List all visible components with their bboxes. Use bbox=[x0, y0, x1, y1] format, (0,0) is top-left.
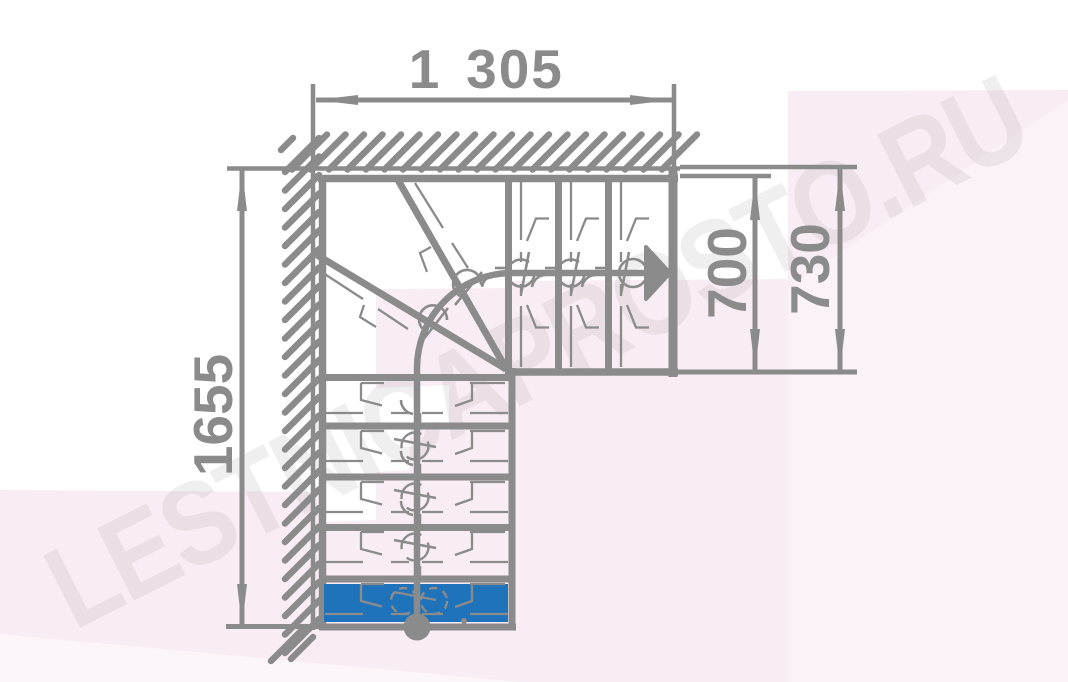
svg-text:730: 730 bbox=[779, 223, 841, 315]
svg-text:700: 700 bbox=[696, 227, 758, 319]
svg-text:305: 305 bbox=[466, 38, 564, 100]
svg-text:1: 1 bbox=[409, 38, 440, 100]
svg-text:1655: 1655 bbox=[182, 354, 244, 476]
